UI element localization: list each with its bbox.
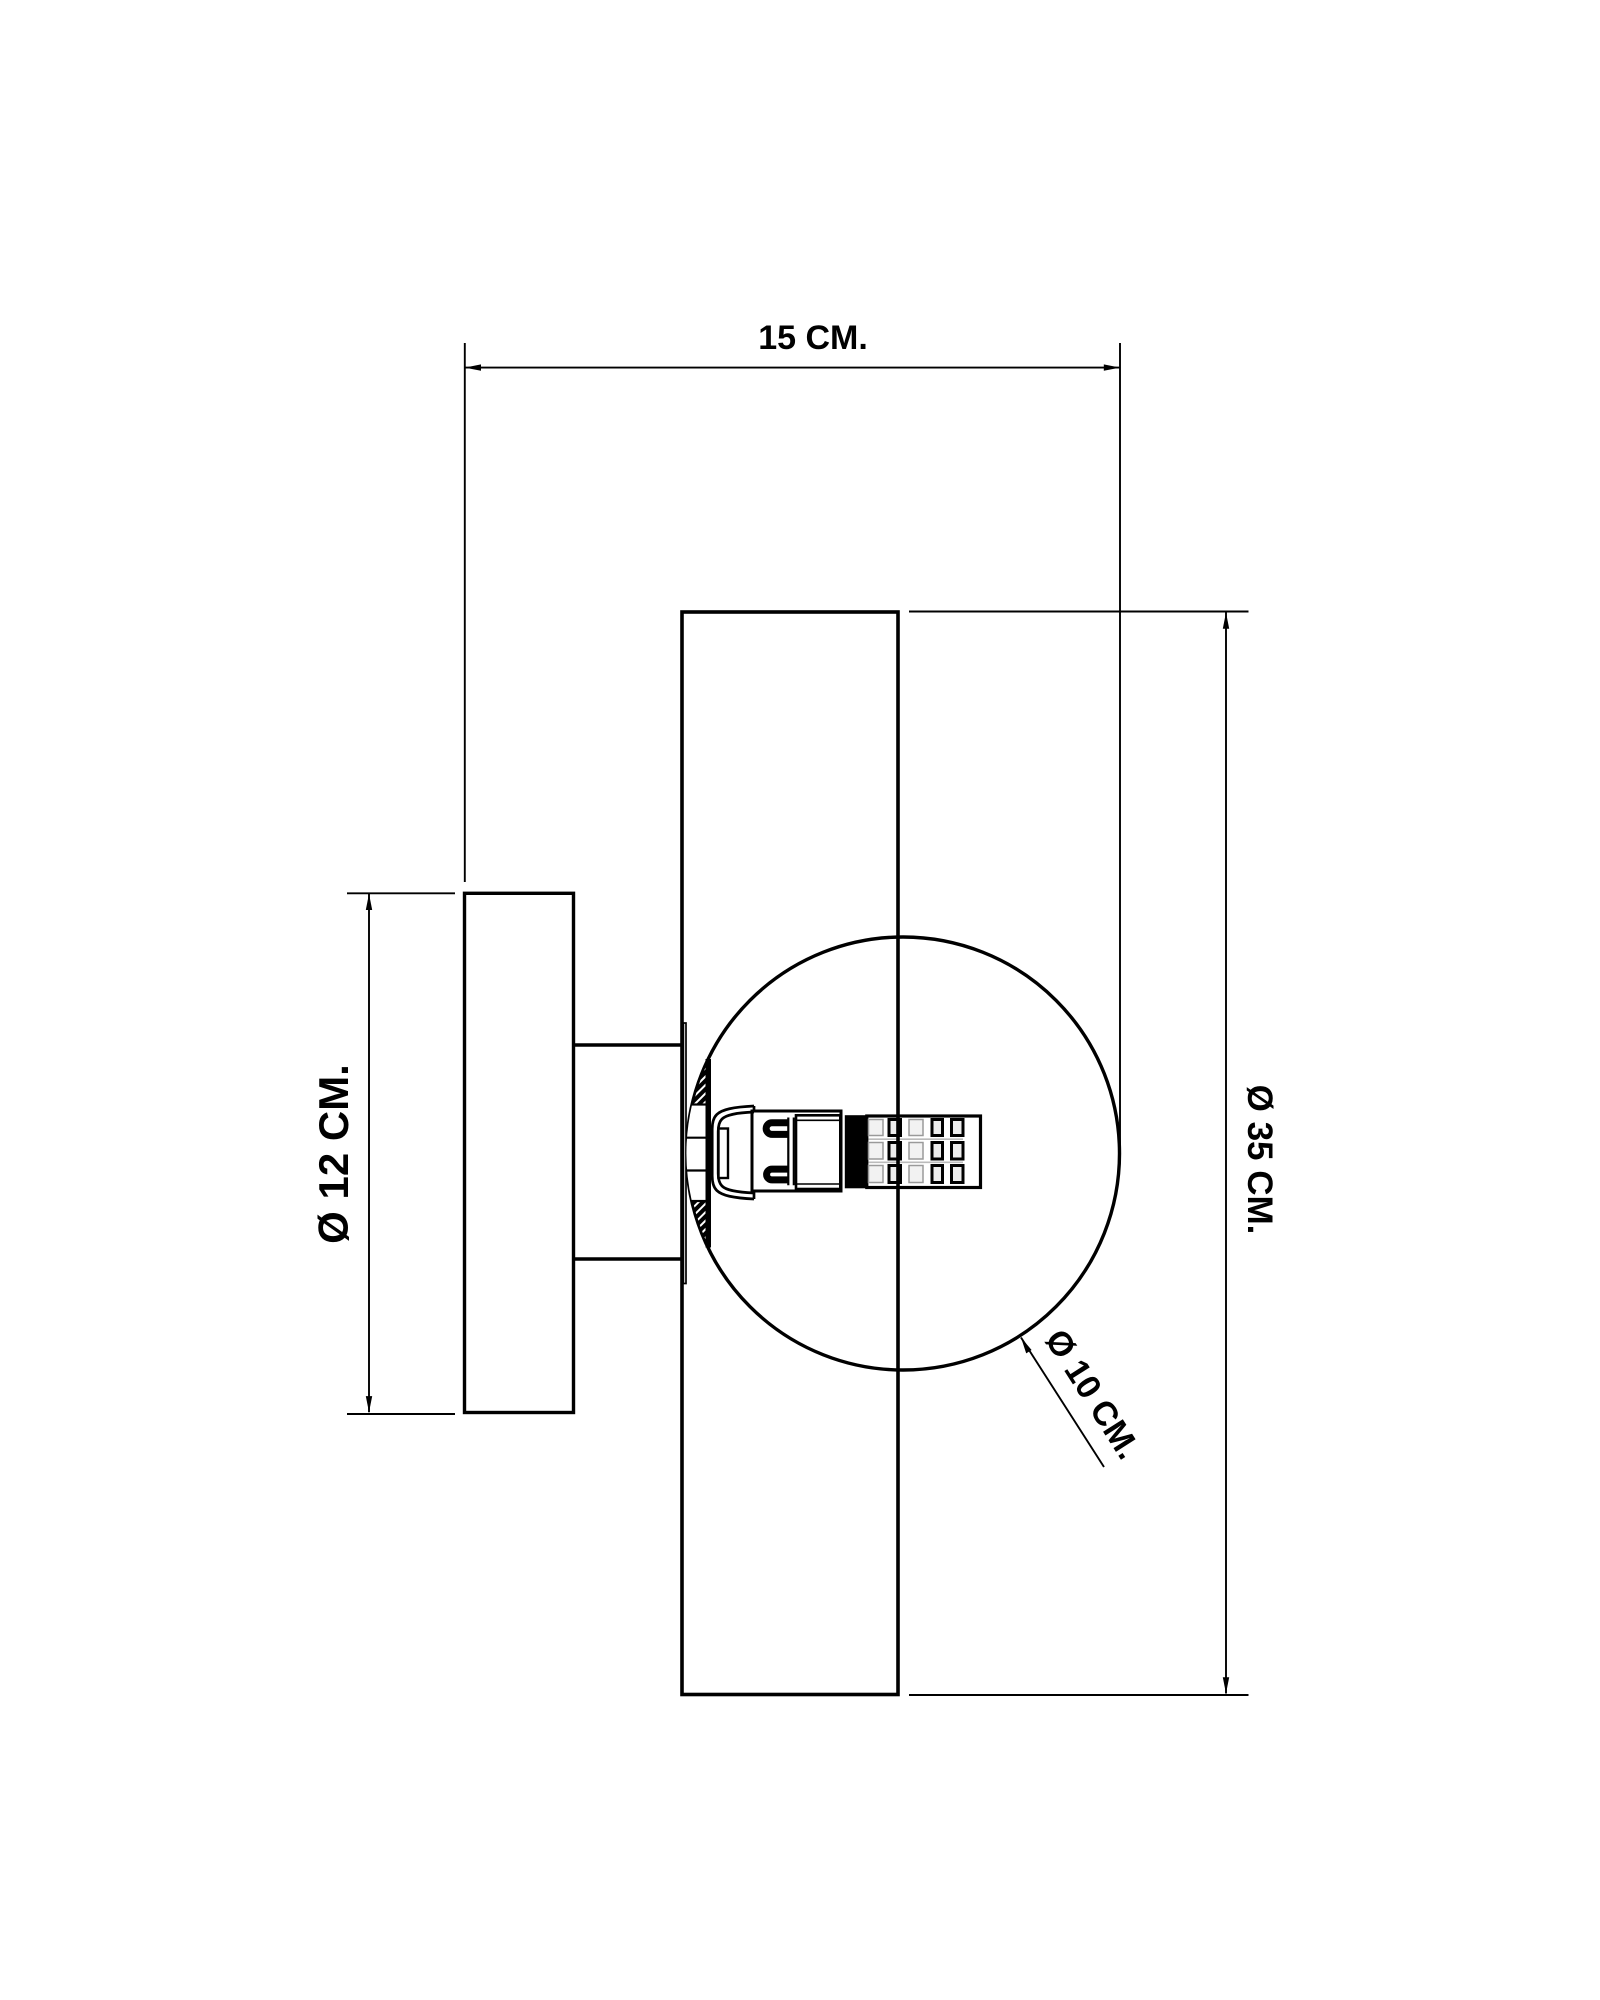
svg-text:15 CM.: 15 CM. <box>758 319 868 357</box>
svg-text:Ø 35 CM.: Ø 35 CM. <box>1240 1085 1279 1235</box>
svg-text:Ø 12 CM.: Ø 12 CM. <box>310 1064 357 1244</box>
